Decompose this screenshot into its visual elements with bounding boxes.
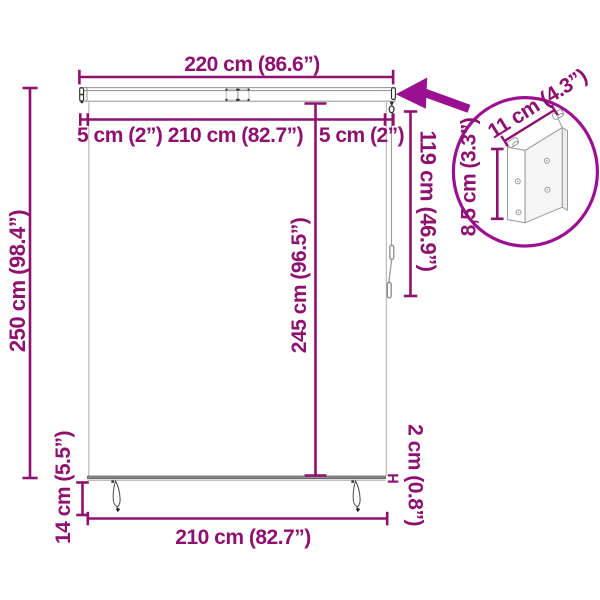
svg-text:14 cm (5.5”): 14 cm (5.5”) — [52, 431, 75, 544]
svg-text:245 cm (96.5”): 245 cm (96.5”) — [288, 218, 311, 353]
svg-text:210 cm (82.7”): 210 cm (82.7”) — [175, 526, 310, 549]
svg-text:250 cm (98.4”): 250 cm (98.4”) — [5, 210, 30, 352]
svg-text:8,5 cm (3.3”): 8,5 cm (3.3”) — [458, 118, 481, 236]
svg-text:220 cm (86.6”): 220 cm (86.6”) — [184, 53, 319, 76]
svg-text:5 cm (2”): 5 cm (2”) — [319, 124, 404, 147]
svg-text:2 cm (0.8”): 2 cm (0.8”) — [404, 424, 427, 526]
svg-text:5 cm (2”) 210 cm (82.7”): 5 cm (2”) 210 cm (82.7”) — [77, 124, 303, 147]
svg-text:119 cm (46.9”): 119 cm (46.9”) — [416, 131, 441, 272]
